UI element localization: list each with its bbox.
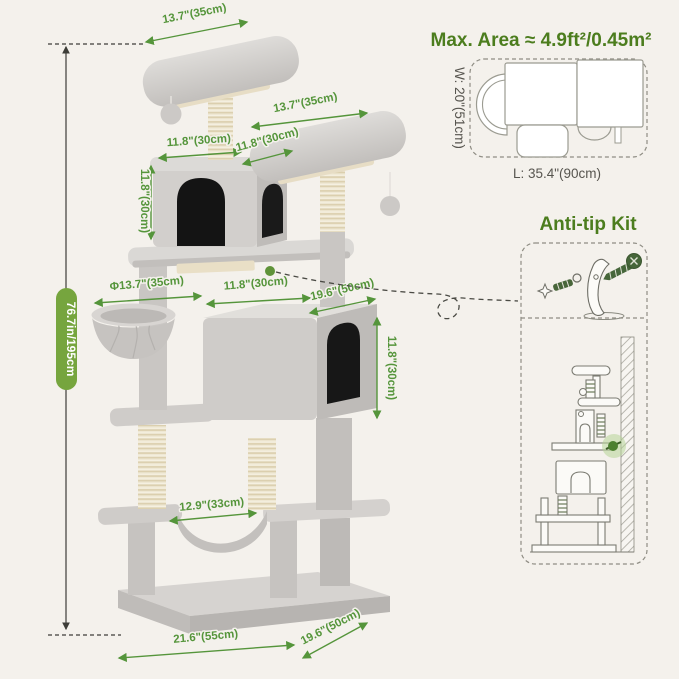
sisal-post-mid-left	[138, 425, 166, 509]
dim-large-condo-width: 11.8"(30cm)	[223, 275, 288, 293]
footprint-hammock-notch	[578, 127, 611, 140]
washer-icon	[573, 274, 581, 282]
anti-tip-point-icon	[265, 266, 275, 276]
upper-condo-side-opening	[262, 184, 283, 238]
pompom-icon	[161, 104, 182, 125]
anti-tip-bracket-icon	[588, 259, 609, 315]
cat-tree	[92, 32, 411, 634]
footprint-basket	[476, 74, 507, 135]
dim-upper-condo-height: 11.8"(30cm)	[138, 169, 150, 233]
dim-base-width-arrow	[119, 645, 294, 658]
dim-top-platform-width: 13.7"(35cm)	[161, 2, 227, 26]
wall-anchor-icon	[552, 279, 573, 292]
lower-hammock	[178, 511, 267, 553]
anti-tip-dot-icon	[608, 441, 618, 451]
post-lower-center	[270, 520, 297, 598]
post-mid-right	[316, 418, 352, 510]
footprint-platform-left	[505, 63, 577, 125]
large-condo	[203, 304, 377, 420]
dim-second-platform-width: 13.7"(35cm)	[272, 91, 338, 115]
anti-tip-title: Anti-tip Kit	[539, 214, 637, 235]
anti-tip-hardware	[538, 254, 642, 320]
dim-top-platform-width-arrow	[146, 22, 247, 42]
footprint-width-label: W: 20"(51cm)	[452, 67, 467, 149]
footprint-side-tab	[615, 127, 621, 143]
dim-large-condo-height: 11.8"(30cm)	[385, 336, 397, 400]
max-area-title: Max. Area ≈ 4.9ft²/0.45m²	[431, 30, 652, 51]
mini-sisal-1	[558, 496, 567, 515]
screw-icon	[602, 254, 642, 283]
mini-sisal-2	[597, 414, 605, 437]
total-height-label: 76.7in/195cm	[64, 302, 78, 377]
dim-lower-hammock-width: 12.9"(33cm)	[179, 496, 245, 514]
footprint-platform-right	[577, 60, 643, 127]
post-lower-right	[320, 518, 350, 586]
upper-condo-front-opening	[177, 178, 225, 246]
mini-pompom-icon	[580, 389, 587, 396]
dim-lower-hammock-width-arrow	[170, 513, 256, 521]
large-condo-opening	[327, 323, 360, 404]
pompom-icon-2	[380, 196, 400, 216]
mini-sisal-3	[586, 380, 595, 398]
anti-tip-wall-sketch	[530, 337, 634, 552]
product-dimension-diagram: 76.7in/195cm 13.7"(35cm) 13.7"(35cm) 11.…	[0, 0, 679, 679]
footprint-length-label: L: 35.4"(90cm)	[513, 166, 601, 181]
diagram-canvas: 76.7in/195cm 13.7"(35cm) 13.7"(35cm) 11.…	[0, 0, 679, 679]
sisal-post-mid-center	[248, 438, 276, 510]
anti-tip-panel: Anti-tip Kit	[521, 214, 647, 564]
dim-large-condo-width-arrow	[207, 298, 310, 304]
sparkle-icon	[538, 284, 552, 298]
post-lower-left	[128, 520, 155, 595]
footprint-shapes	[476, 60, 643, 157]
top-view-panel: Max. Area ≈ 4.9ft²/0.45m² W: 20"(51cm) L…	[431, 30, 652, 181]
footprint-lower-shelf	[517, 125, 568, 157]
mini-cat-tree-sketch	[532, 366, 626, 552]
